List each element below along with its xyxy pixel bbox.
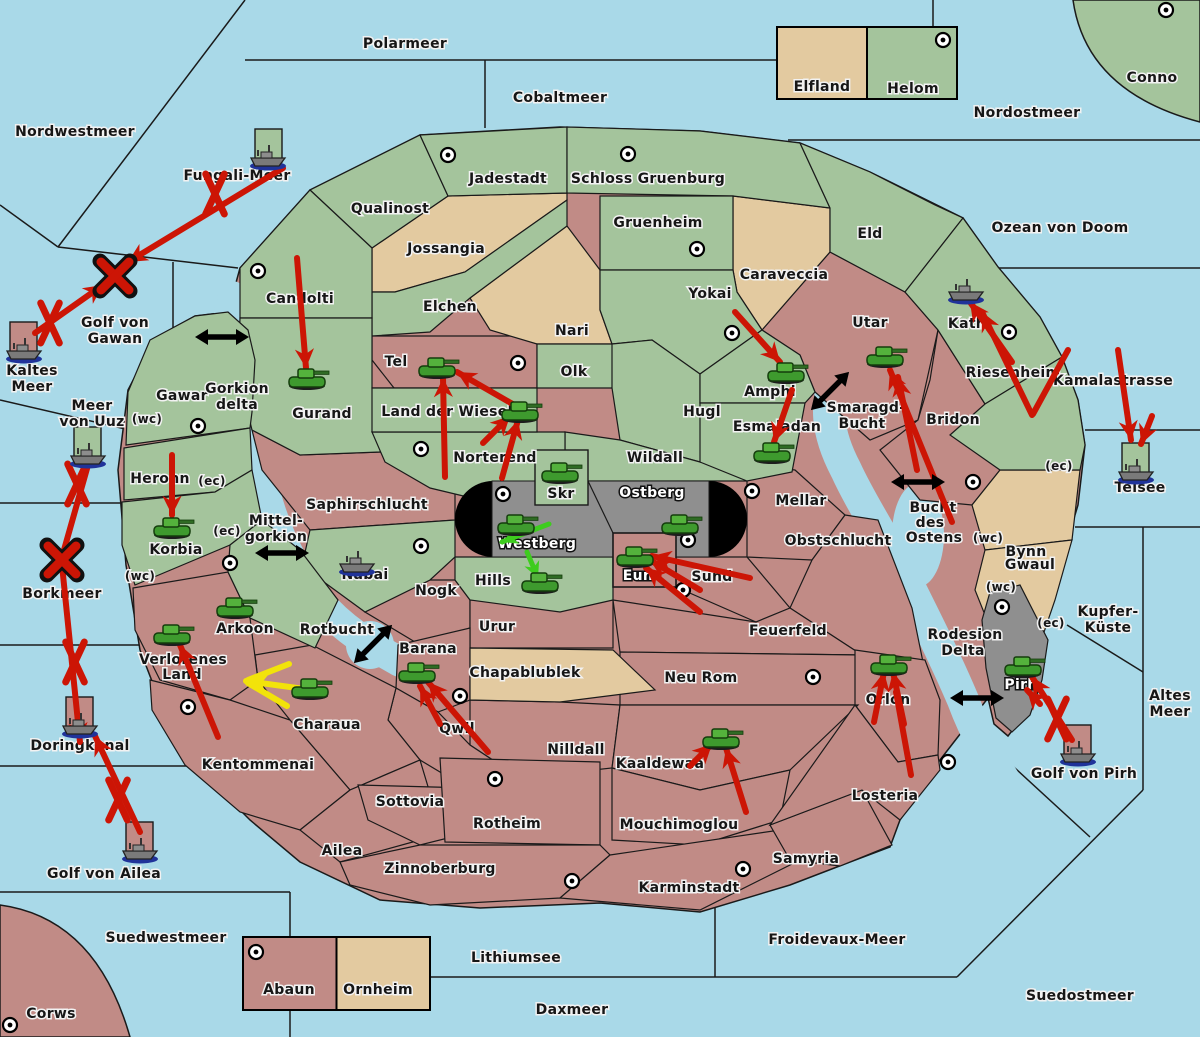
town-marker [496, 487, 510, 501]
town-marker [1002, 325, 1016, 339]
legend-label-abaun: Abaun [263, 982, 315, 998]
territory-label-wildall: Wildall [627, 450, 683, 466]
territory-label-bridon: Bridon [926, 412, 980, 428]
sea-label-gawan: Gawan [88, 331, 143, 347]
territory-label-elchen: Elchen [423, 299, 477, 315]
territory-label-arkoon: Arkoon [216, 621, 274, 637]
sea-label-polarmeer: Polarmeer [363, 36, 447, 52]
town-marker [511, 356, 525, 370]
territory-label-caraveccia: Caraveccia [740, 267, 829, 283]
territory-label-qualinost: Qualinost [351, 201, 429, 217]
territory-label-jossangia: Jossangia [406, 241, 485, 257]
sea-label-smaragd-: Smaragd- [827, 400, 906, 416]
territory-label-nogk: Nogk [415, 583, 457, 599]
territory-label-corws: Corws [26, 1006, 76, 1022]
territory-label-barana: Barana [399, 641, 457, 657]
sea-label-kupfer-: Kupfer- [1078, 604, 1139, 620]
sea-label-des: des [916, 515, 945, 531]
sea-label-meer: Meer [71, 398, 112, 414]
territory-label-neu-rom: Neu Rom [664, 670, 737, 686]
sea-label-bucht: Bucht [838, 416, 885, 432]
blocked-x-mark [47, 545, 77, 575]
town-marker [565, 874, 579, 888]
territory-label-hugl: Hugl [683, 404, 721, 420]
territory-label-gruenheim: Gruenheim [613, 215, 702, 231]
connection-marker: (wc) [125, 569, 155, 583]
town-marker [223, 556, 237, 570]
legend-box: ElflandHelom [777, 27, 957, 99]
sea-label-ostens: Ostens [906, 530, 963, 546]
connection-marker: (ec) [1037, 616, 1064, 630]
legend-box: AbaunOrnheim [243, 937, 430, 1010]
territory-label-kentommenai: Kentommenai [202, 757, 315, 773]
town-marker [414, 442, 428, 456]
town-marker [453, 689, 467, 703]
sea-label-kamalastrasse: Kamalastrasse [1053, 373, 1173, 389]
territory-label-mellar: Mellar [775, 493, 826, 509]
sea-label-meer: Meer [11, 379, 52, 395]
sea-label-k-ste: Küste [1085, 620, 1132, 636]
territory-label-rotheim: Rotheim [473, 816, 541, 832]
territory-label-schloss-gruenburg: Schloss Gruenburg [571, 171, 725, 187]
legend-cell-ornheim [337, 937, 431, 1010]
town-marker [441, 148, 455, 162]
town-marker [414, 539, 428, 553]
territory-label-losteria: Losteria [852, 788, 919, 804]
connection-marker: (wc) [986, 580, 1016, 594]
connection-marker: (ec) [198, 474, 225, 488]
sea-label-nordostmeer: Nordostmeer [974, 105, 1081, 121]
territory-label-skr: Skr [547, 486, 574, 502]
connection-marker: (ec) [1045, 459, 1072, 473]
blocked-x-mark [100, 261, 130, 291]
sea-label-suedwestmeer: Suedwestmeer [105, 930, 226, 946]
sea-label-rotbucht: Rotbucht [300, 622, 374, 638]
sea-label-von-uuz: von Uuz [59, 414, 124, 430]
sea-label-cobaltmeer: Cobaltmeer [513, 90, 607, 106]
town-marker [941, 755, 955, 769]
territory-label-samyria: Samyria [773, 851, 840, 867]
territory-label-feuerfeld: Feuerfeld [749, 623, 827, 639]
territory-label-gawar: Gawar [156, 388, 208, 404]
territory-label-jadestadt: Jadestadt [468, 171, 547, 187]
town-marker [251, 264, 265, 278]
connection-marker: (wc) [973, 531, 1003, 545]
sea-label-mittel-: Mittel- [249, 513, 303, 529]
legend-label-elfland: Elfland [794, 79, 851, 95]
territory-gruenheim[interactable] [600, 196, 733, 270]
territory-label-yokai: Yokai [687, 286, 732, 302]
sea-label-suedostmeer: Suedostmeer [1026, 988, 1134, 1004]
sea-label-kaltes: Kaltes [6, 363, 57, 379]
territory-label-tel: Tel [385, 354, 408, 370]
territory-label-urur: Urur [479, 619, 515, 635]
sea-label-delta: delta [216, 397, 258, 413]
territory-label-hills: Hills [475, 573, 511, 589]
sea-label-gorkion: Gorkion [205, 381, 269, 397]
legend-label-ornheim: Ornheim [343, 982, 413, 998]
connection-marker: (wc) [132, 412, 162, 426]
sea-label-golf-von-ailea: Golf von Ailea [47, 866, 161, 882]
territory-label-heronn: Heronn [130, 471, 189, 487]
territory-label-nilldall: Nilldall [547, 742, 605, 758]
territory-label-olk: Olk [561, 364, 588, 380]
sea-label-froidevaux-meer: Froidevaux-Meer [768, 932, 905, 948]
town-marker [181, 700, 195, 714]
legend-label-helom: Helom [887, 81, 939, 97]
sea-label-rodesion: Rodesion [927, 627, 1002, 643]
strategy-map[interactable]: TelSaphirschluchtMellarObstschluchtSundN… [0, 0, 1200, 1037]
town-marker [191, 419, 205, 433]
territory-label-chapablublek: Chapablublek [469, 665, 581, 681]
sea-label-meer: Meer [1149, 704, 1190, 720]
territory-label-sottovia: Sottovia [376, 794, 444, 810]
town-marker [995, 600, 1009, 614]
territory-label-saphirschlucht: Saphirschlucht [306, 497, 428, 513]
town-marker [3, 1018, 17, 1032]
territory-label-orlon: Orlon [866, 692, 911, 708]
territory-label-gwaul: Gwaul [1005, 557, 1055, 573]
town-marker [745, 484, 759, 498]
town-marker [806, 670, 820, 684]
town-marker [725, 326, 739, 340]
town-marker [488, 772, 502, 786]
sea-label-daxmeer: Daxmeer [536, 1002, 609, 1018]
sea-label-ozean-von-doom: Ozean von Doom [991, 220, 1128, 236]
sea-label-golf-von-pirh: Golf von Pirh [1031, 766, 1137, 782]
territory-label-land-der-wiesel: Land der Wiesel [381, 404, 512, 420]
territory-label-obstschlucht: Obstschlucht [785, 533, 892, 549]
sea-label-golf-von: Golf von [81, 315, 149, 331]
territory-label-nari: Nari [555, 323, 589, 339]
territory-label-zinnoberburg: Zinnoberburg [384, 861, 495, 877]
sea-label-delta: Delta [941, 643, 985, 659]
territory-label-charaua: Charaua [293, 717, 361, 733]
territory-label-mouchimoglou: Mouchimoglou [620, 817, 739, 833]
territory-label-eld: Eld [857, 226, 882, 242]
territory-label-norterend: Norterend [453, 450, 537, 466]
sea-label-altes: Altes [1149, 688, 1191, 704]
territory-label-karminstadt: Karminstadt [638, 880, 739, 896]
territory-neu-rom[interactable] [620, 652, 862, 705]
town-marker [736, 862, 750, 876]
town-marker [621, 147, 635, 161]
territory-label-ostberg: Ostberg [619, 485, 684, 501]
sea-label-nordwestmeer: Nordwestmeer [15, 124, 135, 140]
game-map-screen: TelSaphirschluchtMellarObstschluchtSundN… [0, 0, 1200, 1037]
connection-marker: (ec) [213, 524, 240, 538]
territory-label-utar: Utar [852, 315, 888, 331]
town-marker [966, 475, 980, 489]
town-marker [1159, 3, 1173, 17]
territory-label-korbia: Korbia [149, 542, 202, 558]
sea-label-lithiumsee: Lithiumsee [471, 950, 561, 966]
territory-label-gurand: Gurand [292, 406, 352, 422]
town-marker [690, 242, 704, 256]
sea-label-gorkion: gorkion [245, 529, 307, 545]
territory-label-ailea: Ailea [322, 843, 363, 859]
territory-label-conno: Conno [1127, 70, 1178, 86]
